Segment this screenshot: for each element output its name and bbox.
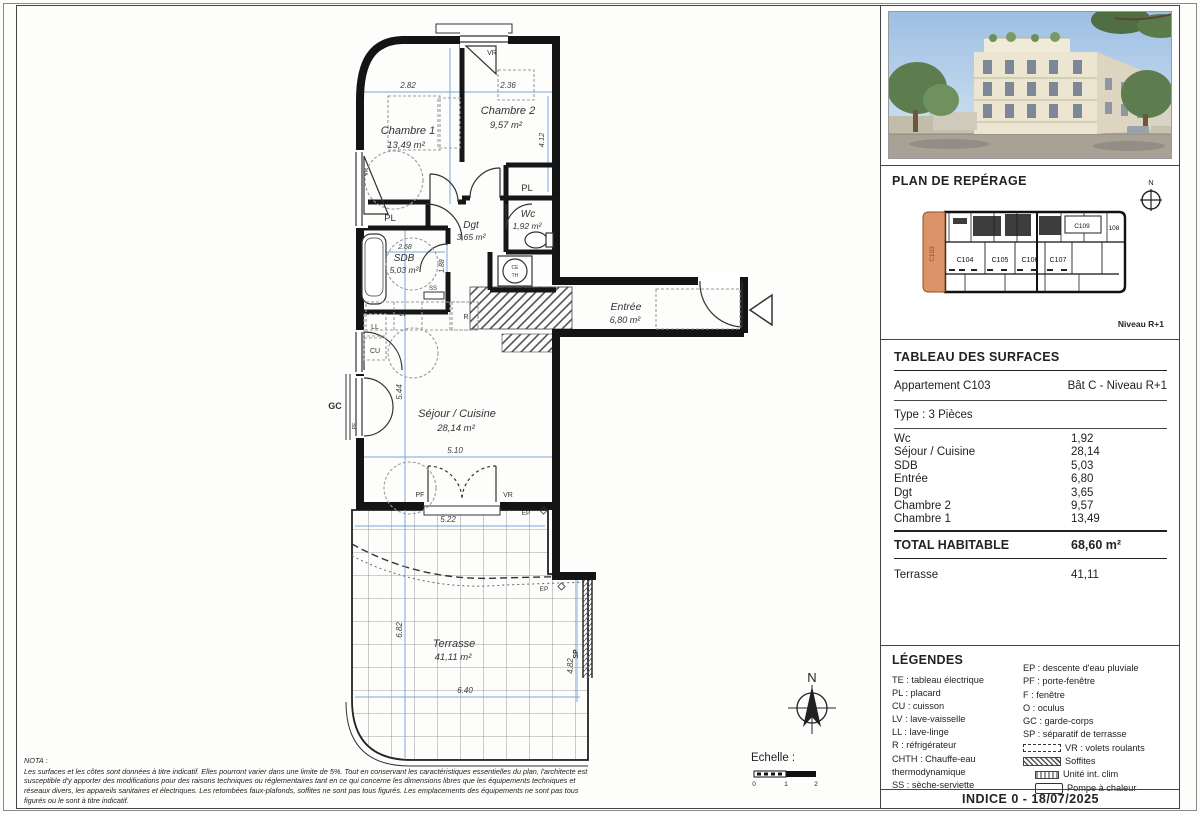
title-block-sidebar: PLAN DE REPÉRAGE N C103: [880, 5, 1180, 808]
room-wc-name: Wc: [521, 209, 535, 220]
legend-right-column: EP : descente d'eau pluviale PF : porte-…: [1023, 662, 1178, 795]
legend-item-label: VR : volets roulants: [1065, 742, 1145, 755]
level-label: Niveau R+1: [1118, 319, 1164, 329]
dim-chambre2-height: 4.12: [537, 132, 546, 147]
row-label: Dgt: [894, 487, 1071, 500]
mini-compass-north-label: N: [1148, 178, 1153, 187]
tag-ep-1: EP: [522, 510, 531, 517]
legend-item: LL : lave-linge: [892, 726, 1022, 739]
scale-bar: Echelle : 0 1 2: [751, 752, 818, 788]
legend-symbol-item: VR : volets roulants: [1023, 742, 1178, 755]
legend-item: LV : lave-vaisselle: [892, 713, 1022, 726]
unite-clim-symbol: [1035, 771, 1059, 779]
row-value: 9,57: [1071, 500, 1167, 513]
row-value: 5,03: [1071, 460, 1167, 473]
row-label: Entrée: [894, 473, 1071, 486]
tag-pf-left-wall: PF: [352, 422, 358, 430]
total-label: TOTAL HABITABLE: [894, 538, 1071, 552]
dim-chambre1-width: 2.82: [399, 81, 416, 90]
nota-title: NOTA :: [24, 756, 674, 766]
scale-label: Echelle :: [751, 752, 795, 764]
dim-terrasse-left: 6.82: [395, 622, 404, 638]
row-value: 13,49: [1071, 513, 1167, 526]
floor-plan-sheet: Chambre 1 13,49 m² Chambre 2 9,57 m² Dgt…: [0, 0, 1200, 814]
legend-symbol-item: Unité int. clim: [1023, 768, 1178, 781]
tag-vr-sejour-door: VR: [503, 492, 513, 499]
room-sejour-area: 28,14 m²: [436, 423, 475, 434]
legend-item-label: Unité int. clim: [1063, 768, 1118, 781]
row-label: Chambre 1: [894, 513, 1071, 526]
tag-garde-corps: GC: [328, 401, 342, 411]
legend-item: GC : garde-corps: [1023, 715, 1178, 728]
terrasse-row: Terrasse 41,11: [894, 559, 1167, 591]
dim-sdb-height: 1.88: [439, 259, 446, 273]
room-chambre2-name: Chambre 2: [481, 105, 535, 117]
tag-lave-linge: LL: [371, 324, 379, 331]
legend-item: R : réfrigérateur: [892, 739, 1022, 752]
tag-separatif-terrasse: SP: [573, 649, 580, 659]
dim-terrasse-top: 5.22: [440, 515, 456, 524]
row-value: 6,80: [1071, 473, 1167, 486]
total-row: TOTAL HABITABLE 68,60 m²: [894, 532, 1167, 559]
tag-placard-1: PL: [384, 213, 396, 224]
room-chambre1-area: 13,49 m²: [387, 140, 425, 151]
legend-symbol-item: Soffites: [1023, 755, 1178, 768]
table-row: Wc1,92: [894, 433, 1167, 446]
row-label: Chambre 2: [894, 500, 1071, 513]
tag-lave-vaisselle: LV: [399, 311, 407, 318]
room-sejour-name: Séjour / Cuisine: [418, 408, 496, 420]
terrasse-value: 41,11: [1071, 569, 1167, 581]
room-sdb-name: SDB: [394, 253, 415, 264]
building-level: Bât C - Niveau R+1: [1068, 380, 1167, 392]
legend-item: EP : descente d'eau pluviale: [1023, 662, 1178, 675]
dim-sejour-height: 5.44: [395, 384, 404, 400]
dim-terrasse-right: 4.82: [566, 658, 575, 674]
room-terrasse-area: 41,11 m²: [435, 652, 473, 663]
surfaces-table-title: TABLEAU DES SURFACES: [894, 350, 1167, 371]
table-row: SDB5,03: [894, 460, 1167, 473]
terrasse-label: Terrasse: [894, 569, 1071, 581]
revision-index-label: INDICE 0 - 18/07/2025: [962, 792, 1099, 806]
table-row: Dgt3,65: [894, 487, 1167, 500]
unit-c104-label: C104: [957, 257, 974, 264]
legend-item: O : oculus: [1023, 702, 1178, 715]
surfaces-rows: Wc1,92 Séjour / Cuisine28,14 SDB5,03 Ent…: [894, 429, 1167, 532]
row-value: 3,65: [1071, 487, 1167, 500]
room-chambre2-area: 9,57 m²: [490, 120, 523, 131]
legend-item-label: Soffites: [1065, 755, 1095, 768]
nota-disclaimer: NOTA : Les surfaces et les côtes sont do…: [24, 756, 674, 805]
room-entree-name: Entrée: [611, 301, 642, 313]
tag-vr-chambre1-window: VR: [364, 167, 370, 176]
tag-placard-2: PL: [521, 183, 533, 194]
scale-tick-0: 0: [752, 781, 756, 788]
row-value: 1,92: [1071, 433, 1167, 446]
room-entree-area: 6,80 m²: [610, 315, 642, 325]
scale-tick-1: 1: [784, 781, 788, 788]
row-label: SDB: [894, 460, 1071, 473]
room-dgt-area: 3,65 m²: [457, 232, 487, 242]
legend-item: PL : placard: [892, 687, 1022, 700]
dim-terrasse-bottom: 6.40: [457, 686, 473, 695]
unit-c105-label: C105: [992, 257, 1009, 264]
apartment-type: Type : 3 Pièces: [894, 401, 1167, 429]
legend-item: SP : séparatif de terrasse: [1023, 728, 1178, 741]
unit-c106-label: C106: [1022, 257, 1039, 264]
legend-title: LÉGENDES: [892, 653, 963, 667]
revision-index-bar: INDICE 0 - 18/07/2025: [881, 789, 1180, 808]
north-compass: N: [788, 670, 836, 734]
unit-c109-label: C109: [1074, 223, 1090, 230]
tag-chauffe-eau-th: TH: [512, 273, 519, 279]
building-photo: [888, 11, 1172, 159]
nota-line: figurés ou le sont à titre indicatif.: [24, 796, 674, 806]
apartment-floor-plan: Chambre 1 13,49 m² Chambre 2 9,57 m² Dgt…: [0, 0, 880, 814]
room-terrasse-name: Terrasse: [433, 638, 475, 650]
tag-seche-serviette: SS: [429, 286, 437, 292]
surfaces-table-section: TABLEAU DES SURFACES Appartement C103 Bâ…: [881, 339, 1180, 645]
tag-pf-sejour-door: PF: [416, 492, 425, 499]
volets-roulants-symbol: [1023, 744, 1061, 752]
legend-item: PF : porte-fenêtre: [1023, 675, 1178, 688]
legend-item: CHTH : Chauffe-eau: [892, 753, 1022, 766]
row-label: Wc: [894, 433, 1071, 446]
unit-108-label: 108: [1109, 225, 1120, 232]
tag-ep-2: EP: [540, 586, 549, 593]
mini-compass: N: [1138, 176, 1164, 219]
row-value: 28,14: [1071, 446, 1167, 459]
legend-item: TE : tableau électrique: [892, 674, 1022, 687]
apartment-id: Appartement C103: [894, 380, 991, 392]
room-sdb-area: 5,03 m²: [390, 265, 420, 275]
unit-c107-label: C107: [1050, 257, 1067, 264]
tag-cuisson: CU: [370, 348, 380, 355]
location-plan-title: PLAN DE REPÉRAGE: [892, 174, 1027, 188]
row-label: Séjour / Cuisine: [894, 446, 1071, 459]
tag-vr-top-window: VR: [487, 50, 497, 57]
room-wc-area: 1,92 m²: [513, 221, 543, 231]
unit-c103-label: C103: [929, 246, 936, 262]
nota-line: réseaux divers, les appareils sanitaires…: [24, 786, 674, 796]
table-row: Entrée6,80: [894, 473, 1167, 486]
legend-section: LÉGENDES TE : tableau électrique PL : pl…: [881, 645, 1180, 789]
room-dgt-name: Dgt: [463, 220, 480, 231]
tag-chauffe-eau-ce: CE: [512, 265, 520, 271]
building-photo-art: [889, 12, 1172, 159]
key-plan-map: C103 C109 108 C104 C105 C106 C107: [919, 204, 1129, 309]
legend-left-column: TE : tableau électrique PL : placard CU …: [892, 674, 1022, 792]
dim-sdb-width: 2.68: [397, 244, 412, 251]
nota-line: susceptible d'y apporter des modificatio…: [24, 776, 674, 786]
tag-refrigerateur: R: [463, 314, 468, 321]
legend-item: CU : cuisson: [892, 700, 1022, 713]
scale-tick-2: 2: [814, 781, 818, 788]
table-row: Chambre 113,49: [894, 513, 1167, 526]
dim-chambre2-width: 2.36: [499, 81, 516, 90]
north-label: N: [807, 670, 816, 685]
table-row: Séjour / Cuisine28,14: [894, 446, 1167, 459]
soffites-symbol: [1023, 757, 1061, 766]
dim-sejour-width: 5.10: [447, 446, 463, 455]
location-plan-section: PLAN DE REPÉRAGE N C103: [881, 165, 1180, 339]
legend-item: thermodynamique: [892, 766, 1022, 779]
total-value: 68,60 m²: [1071, 538, 1167, 552]
room-chambre1-name: Chambre 1: [381, 125, 435, 137]
table-row: Chambre 29,57: [894, 500, 1167, 513]
nota-line: Les surfaces et les côtes sont données à…: [24, 767, 674, 777]
legend-item: F : fenêtre: [1023, 689, 1178, 702]
